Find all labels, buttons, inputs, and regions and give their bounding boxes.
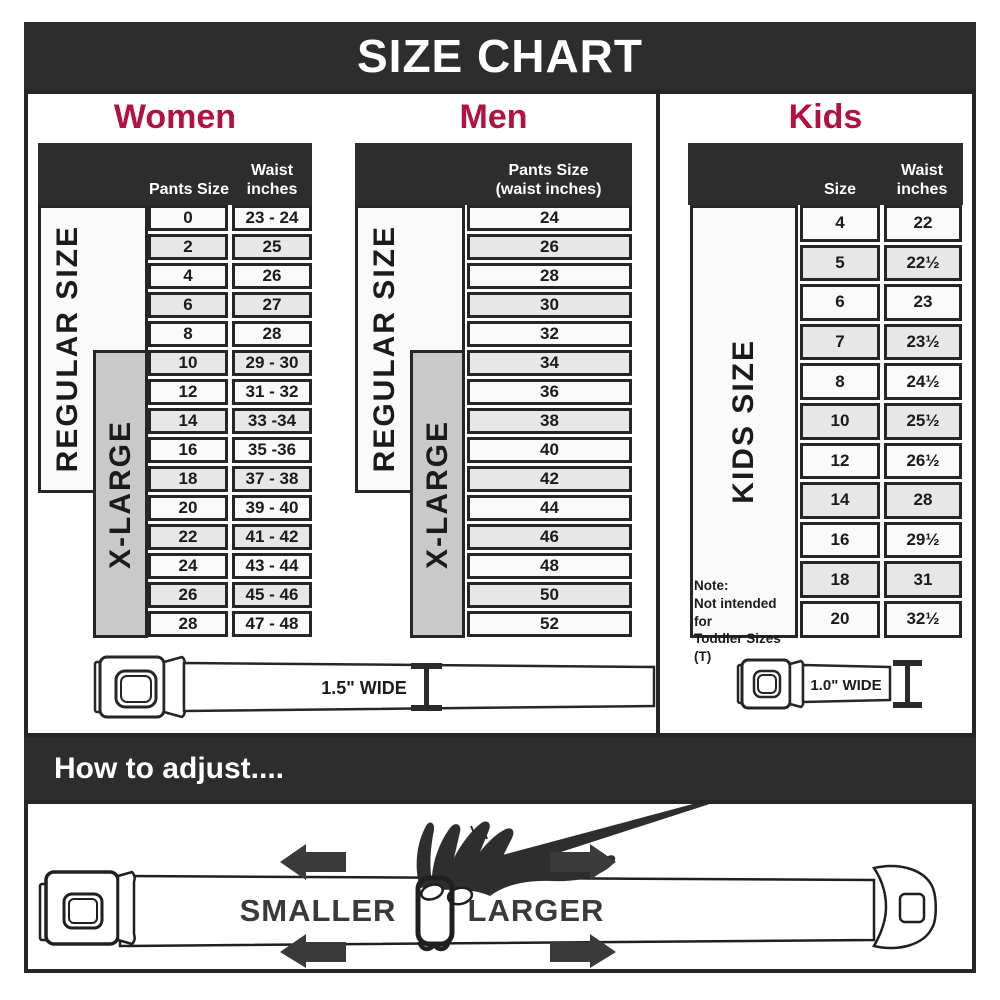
men-header-line1: Pants Size [467, 162, 630, 180]
pants-size-cell: 52 [467, 611, 632, 637]
waist-cell: 26½ [884, 443, 962, 480]
table-row: 422 [800, 205, 962, 242]
size-cell: 16 [800, 522, 880, 559]
note-line1: Note: [694, 577, 796, 595]
men-table-header: Pants Size (waist inches) [355, 143, 632, 205]
pants-size-cell: 34 [467, 350, 632, 376]
table-row: 30 [467, 292, 632, 318]
adjust-belt-illustration: SMALLER LARGER [28, 804, 972, 969]
pants-size-cell: 26 [467, 234, 632, 260]
buckle-strap-loop [790, 661, 803, 707]
title-bar: SIZE CHART [24, 22, 976, 90]
table-row: 52 [467, 611, 632, 637]
table-row: 1629½ [800, 522, 962, 559]
table-row: 627 [148, 292, 312, 318]
pants-size-cell: 18 [148, 466, 228, 492]
table-row: 38 [467, 408, 632, 434]
table-row: 426 [148, 263, 312, 289]
buckle-strap-loop [164, 657, 185, 717]
pants-size-cell: 28 [148, 611, 228, 637]
size-cell: 14 [800, 482, 880, 519]
adult-belt-illustration: 1.5" WIDE [88, 650, 658, 728]
page-title: SIZE CHART [357, 29, 643, 83]
table-row: 42 [467, 466, 632, 492]
left-arrow-top [280, 844, 346, 880]
table-row: 1226½ [800, 443, 962, 480]
women-waist-header: Waist inches [234, 162, 310, 199]
pants-size-cell: 26 [148, 582, 228, 608]
size-cell: 7 [800, 324, 880, 361]
women-xlarge-band: X-LARGE [93, 350, 148, 638]
pants-size-cell: 42 [467, 466, 632, 492]
kids-note: Note: Not intended for Toddler Sizes (T) [694, 577, 796, 666]
waist-cell: 29 - 30 [232, 350, 312, 376]
men-kids-divider [656, 90, 660, 737]
table-row: 26 [467, 234, 632, 260]
pants-size-cell: 6 [148, 292, 228, 318]
table-row: 2039 - 40 [148, 495, 312, 521]
waist-cell: 23 [884, 284, 962, 321]
pants-size-cell: 14 [148, 408, 228, 434]
pants-size-cell: 20 [148, 495, 228, 521]
waist-header-line2: inches [234, 181, 310, 199]
women-regular-size-label: REGULAR SIZE [51, 225, 85, 472]
waist-cell: 47 - 48 [232, 611, 312, 637]
pants-size-cell: 8 [148, 321, 228, 347]
kids-size-header: Size [800, 181, 880, 199]
waist-cell: 31 [884, 561, 962, 598]
adult-belt-width-label: 1.5" WIDE [321, 678, 407, 698]
how-to-adjust-bar: How to adjust.... [24, 737, 976, 800]
pants-size-cell: 24 [467, 205, 632, 231]
table-row: 824½ [800, 363, 962, 400]
table-row: 44 [467, 495, 632, 521]
women-section-header: Women [38, 94, 312, 140]
table-row: 34 [467, 350, 632, 376]
pants-size-cell: 16 [148, 437, 228, 463]
size-cell: 20 [800, 601, 880, 638]
men-section-header: Men [355, 94, 632, 140]
how-to-adjust-title: How to adjust.... [54, 752, 284, 786]
table-row: 522½ [800, 245, 962, 282]
table-row: 24 [467, 205, 632, 231]
size-cell: 10 [800, 403, 880, 440]
men-pants-size-header: Pants Size (waist inches) [467, 162, 630, 199]
pants-size-cell: 40 [467, 437, 632, 463]
note-line2: Not intended for [694, 595, 796, 631]
note-line3: Toddler Sizes (T) [694, 630, 796, 666]
pants-size-cell: 38 [467, 408, 632, 434]
table-row: 2241 - 42 [148, 524, 312, 550]
women-table-rows: 023 - 242254266278281029 - 301231 - 3214… [148, 205, 312, 637]
table-row: 2645 - 46 [148, 582, 312, 608]
table-row: 1428 [800, 482, 962, 519]
waist-cell: 28 [884, 482, 962, 519]
waist-cell: 45 - 46 [232, 582, 312, 608]
size-cell: 4 [800, 205, 880, 242]
table-row: 1837 - 38 [148, 466, 312, 492]
waist-cell: 37 - 38 [232, 466, 312, 492]
women-table-header: Pants Size Waist inches [38, 143, 312, 205]
width-measure-mark [893, 660, 922, 708]
table-row: 32 [467, 321, 632, 347]
kids-size-band: KIDS SIZE [690, 205, 798, 638]
men-xlarge-label: X-LARGE [421, 420, 455, 569]
table-row: 48 [467, 553, 632, 579]
size-chart-page: SIZE CHART Women Men Kids Pants Size Wai… [0, 0, 1000, 1000]
pants-size-cell: 0 [148, 205, 228, 231]
table-row: 1831 [800, 561, 962, 598]
kids-belt-width-label: 1.0" WIDE [810, 677, 881, 694]
kids-size-label: KIDS SIZE [727, 339, 761, 504]
men-xlarge-band: X-LARGE [410, 350, 465, 638]
waist-cell: 33 -34 [232, 408, 312, 434]
pants-size-cell: 2 [148, 234, 228, 260]
kids-waist-header: Waist inches [884, 162, 960, 199]
pants-size-cell: 4 [148, 263, 228, 289]
buckle-button-inner [69, 899, 97, 923]
table-row: 1029 - 30 [148, 350, 312, 376]
size-cell: 6 [800, 284, 880, 321]
waist-cell: 23½ [884, 324, 962, 361]
table-row: 1231 - 32 [148, 379, 312, 405]
table-row: 023 - 24 [148, 205, 312, 231]
waist-cell: 41 - 42 [232, 524, 312, 550]
table-row: 1635 -36 [148, 437, 312, 463]
waist-cell: 31 - 32 [232, 379, 312, 405]
table-row: 1025½ [800, 403, 962, 440]
table-row: 623 [800, 284, 962, 321]
size-cell: 18 [800, 561, 880, 598]
belt-tip-slot [900, 894, 924, 922]
men-header-line2: (waist inches) [467, 181, 630, 199]
kids-waist-line2: inches [884, 181, 960, 199]
pants-size-cell: 10 [148, 350, 228, 376]
waist-cell: 28 [232, 321, 312, 347]
pants-size-cell: 22 [148, 524, 228, 550]
waist-cell: 23 - 24 [232, 205, 312, 231]
pants-size-cell: 48 [467, 553, 632, 579]
buckle-strap-loop [118, 872, 135, 944]
kids-table-header: Size Waist inches [688, 143, 963, 205]
size-cell: 12 [800, 443, 880, 480]
waist-cell: 32½ [884, 601, 962, 638]
waist-cell: 26 [232, 263, 312, 289]
buckle-button-inner [121, 676, 151, 702]
table-row: 2032½ [800, 601, 962, 638]
waist-cell: 22½ [884, 245, 962, 282]
table-row: 828 [148, 321, 312, 347]
table-row: 50 [467, 582, 632, 608]
women-pants-size-header: Pants Size [146, 181, 232, 199]
table-row: 1433 -34 [148, 408, 312, 434]
size-cell: 8 [800, 363, 880, 400]
table-row: 40 [467, 437, 632, 463]
men-table-rows: 242628303234363840424446485052 [467, 205, 632, 637]
waist-cell: 39 - 40 [232, 495, 312, 521]
pants-size-cell: 28 [467, 263, 632, 289]
kids-waist-line1: Waist [884, 162, 960, 180]
table-row: 2847 - 48 [148, 611, 312, 637]
pants-size-cell: 46 [467, 524, 632, 550]
pants-size-cell: 44 [467, 495, 632, 521]
belt-strap [184, 663, 654, 711]
pants-size-cell: 36 [467, 379, 632, 405]
smaller-label: SMALLER [240, 893, 397, 928]
waist-cell: 43 - 44 [232, 553, 312, 579]
waist-cell: 25 [232, 234, 312, 260]
larger-label: LARGER [468, 893, 605, 928]
waist-cell: 29½ [884, 522, 962, 559]
pants-size-cell: 32 [467, 321, 632, 347]
size-cell: 5 [800, 245, 880, 282]
buckle-button-inner [758, 675, 776, 693]
pants-size-cell: 12 [148, 379, 228, 405]
table-row: 28 [467, 263, 632, 289]
table-row: 723½ [800, 324, 962, 361]
men-regular-size-label: REGULAR SIZE [368, 225, 402, 472]
pants-size-cell: 30 [467, 292, 632, 318]
pants-size-cell: 50 [467, 582, 632, 608]
waist-cell: 27 [232, 292, 312, 318]
table-row: 36 [467, 379, 632, 405]
pants-size-cell: 24 [148, 553, 228, 579]
waist-cell: 22 [884, 205, 962, 242]
table-row: 46 [467, 524, 632, 550]
waist-cell: 24½ [884, 363, 962, 400]
waist-header-line1: Waist [234, 162, 310, 180]
table-row: 2443 - 44 [148, 553, 312, 579]
waist-cell: 25½ [884, 403, 962, 440]
kids-table-rows: 422522½623723½824½1025½1226½14281629½183… [800, 205, 962, 638]
table-row: 225 [148, 234, 312, 260]
waist-cell: 35 -36 [232, 437, 312, 463]
women-xlarge-label: X-LARGE [104, 420, 138, 569]
kids-section-header: Kids [688, 94, 963, 140]
